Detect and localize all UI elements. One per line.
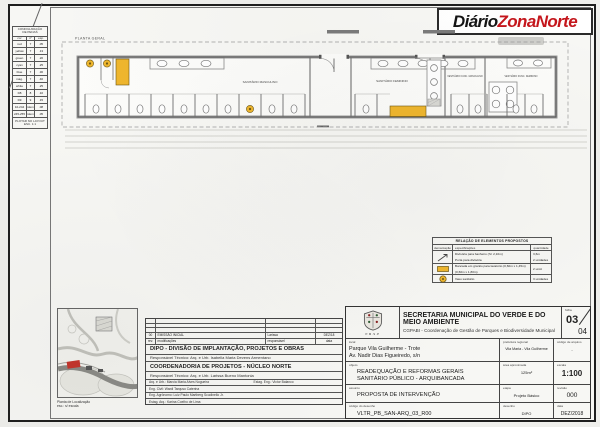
pen-table-row: cyan7.25 — [13, 62, 47, 69]
logo-text-red: ZonaNorte — [497, 12, 577, 31]
room-label-vest-masc: VESTIÁRIO FUNC. MASCULINO — [447, 75, 483, 78]
logo-text-black: Diário — [453, 12, 498, 31]
pmsp-crest-icon — [363, 310, 383, 331]
toilet-fixture — [513, 105, 519, 113]
partition-symbol-icon — [436, 253, 449, 262]
bancada-symbol-icon — [437, 266, 449, 272]
desenho-cell: desenho DIPO — [500, 403, 554, 418]
drawing-sheet-page: CONFIGURAÇÃO DE PENAS cor nº esp. red7.0… — [0, 0, 600, 427]
title-block-header: P.M.S.P SECRETARIA MUNICIPAL DO VERDE E … — [346, 307, 590, 339]
room-label-vest-fem: VESTIÁRIO FUNC. FEMININO — [504, 75, 537, 78]
org-name: SECRETARIA MUNICIPAL DO VERDE E DO MEIO … — [403, 312, 558, 326]
title-block: P.M.S.P SECRETARIA MUNICIPAL DO VERDE E … — [345, 306, 591, 419]
pen-table-row: D88.10 — [13, 90, 47, 97]
shower-strip — [427, 60, 441, 106]
toilet-fixture — [225, 105, 231, 113]
toilet-fixture — [159, 105, 165, 113]
toilet-fixture — [457, 105, 463, 113]
keyplan-drawing — [58, 309, 138, 398]
toilet-fixture — [203, 105, 209, 113]
room-label-fem: SANITÁRIO FEMININO — [376, 79, 408, 83]
vaso-symbol-icon — [439, 275, 447, 283]
toilet-fixture — [269, 105, 275, 113]
toilet-fixture — [475, 105, 481, 113]
area-cell: área aproximada 125m² — [500, 362, 554, 384]
codigo-arquivo-cell: código de arquivo - — [554, 339, 590, 361]
pen-table-row: blue7.30 — [13, 69, 47, 76]
scale-value: 1:100 — [557, 369, 587, 378]
pen-table-row: green7.20 — [13, 55, 47, 62]
legend-title: RELAÇÃO DE ELEMENTOS PROPOSTOS — [433, 238, 551, 245]
pen-table-row: mag.7.40 — [13, 76, 47, 83]
escala-cell: escala 1:100 — [554, 362, 590, 384]
toilet-fixture — [93, 105, 99, 113]
toilet-fixture — [115, 105, 121, 113]
toilet-fixture — [531, 105, 537, 113]
title-block-codigo-row: código do desenho VLTR_PB_SAN-ARQ_03_R00… — [346, 403, 590, 418]
local-cell: local Parque Vila Guilherme - Trote Av. … — [346, 339, 500, 361]
floor-plan: PLANTA GERAL — [55, 30, 595, 160]
bleacher-lines — [65, 130, 587, 148]
org-dept: CGPABI - Coordenação de Gestão de Parque… — [403, 328, 558, 333]
keyplan-map — [57, 308, 138, 398]
toilet-fixture — [181, 105, 187, 113]
team-table: 00 EMISSÃO INICIAL Larissa DEZ/18 rev. m… — [145, 318, 343, 405]
pen-table-footer: PLOTAR NO LAYOUT ESC. 1:1 — [13, 118, 47, 128]
title-block-objeto-row: objeto READEQUAÇÃO E REFORMAS GERAIS SAN… — [346, 362, 590, 385]
pen-table-row: 10-244idem.08 — [13, 104, 47, 111]
dipo-title: DIPO - DIVISÃO DE IMPLANTAÇÃO, PROJETOS … — [146, 345, 342, 355]
legend-table: RELAÇÃO DE ELEMENTOS PROPOSTOS demarcaçã… — [432, 237, 552, 283]
plan-title: PLANTA GERAL — [75, 37, 105, 41]
org-cell: SECRETARIA MUNICIPAL DO VERDE E DO MEIO … — [400, 307, 562, 338]
etapa-cell: etapa Projeto Básico — [500, 385, 554, 402]
crest-caption: P.M.S.P — [365, 332, 379, 336]
pen-table-row: D99.15 — [13, 97, 47, 104]
prefeitura-cell: prefeitura regional Vila Maria - Vila Gu… — [500, 339, 554, 361]
canopy-beam — [423, 30, 455, 34]
drawing-code: VLTR_PB_SAN-ARQ_03_R00 — [349, 411, 496, 417]
codigo-desenho-cell: código do desenho VLTR_PB_SAN-ARQ_03_R00 — [346, 403, 500, 418]
sheet-total: 04 — [578, 327, 587, 336]
revisao-cell: revisão 000 — [554, 385, 590, 402]
toilet-fixture — [137, 105, 143, 113]
legend-row-vaso: Vaso sanitário 3 unidades — [433, 275, 551, 282]
pen-table-row: white7.25 — [13, 83, 47, 90]
revision-value: 000 — [557, 392, 587, 399]
data-cell: data DEZ/2018 — [554, 403, 590, 418]
keyplan-caption: Planta de Localização esc.: s/ escala — [57, 400, 157, 409]
pen-config-table: CONFIGURAÇÃO DE PENAS cor nº esp. red7.0… — [12, 26, 48, 129]
legend-row-divisoria: Divisória para banheiro (h= 2,10m) Porta… — [433, 251, 551, 264]
toilet-fixture — [291, 105, 297, 113]
dipo-responsible: Responsável Técnico: Arq. e Urb. Isabell… — [146, 355, 342, 363]
title-block-assunto-row: assunto PROPOSTA DE INTERVENÇÃO etapa Pr… — [346, 385, 590, 403]
logo-text: DiárioZonaNorte — [453, 12, 577, 32]
toilet-fixture — [363, 105, 369, 113]
title-block-local-row: local Parque Vila Guilherme - Trote Av. … — [346, 339, 590, 362]
crest-cell: P.M.S.P — [346, 307, 400, 338]
pen-table-row: yellow7.13 — [13, 48, 47, 55]
assunto-cell: assunto PROPOSTA DE INTERVENÇÃO — [346, 385, 500, 402]
staff-row: Estag. Arq.: Karina Coelho de Lima — [146, 399, 342, 406]
date-value: DEZ/2018 — [557, 411, 587, 417]
sheet-number-cell: folha 03 04 — [562, 307, 590, 338]
sheet-number: 03 — [566, 314, 578, 326]
objeto-cell: objeto READEQUAÇÃO E REFORMAS GERAIS SAN… — [346, 362, 500, 384]
pen-table-row: 245-255idem.05 — [13, 111, 47, 118]
legend-row-bancada: Bancada em granito para lavatório (0,60m… — [433, 264, 551, 275]
coord-responsible: Responsável Técnico: Arq. e Urb. Larissa… — [146, 372, 342, 380]
pen-table-row: red7.05 — [13, 41, 47, 48]
room-label-masc: SANITÁRIO MASCULINO — [243, 80, 279, 84]
coord-title: COORDENADORIA DE PROJETOS - NÚCLEO NORTE — [146, 362, 342, 372]
canopy-beam — [327, 30, 359, 34]
